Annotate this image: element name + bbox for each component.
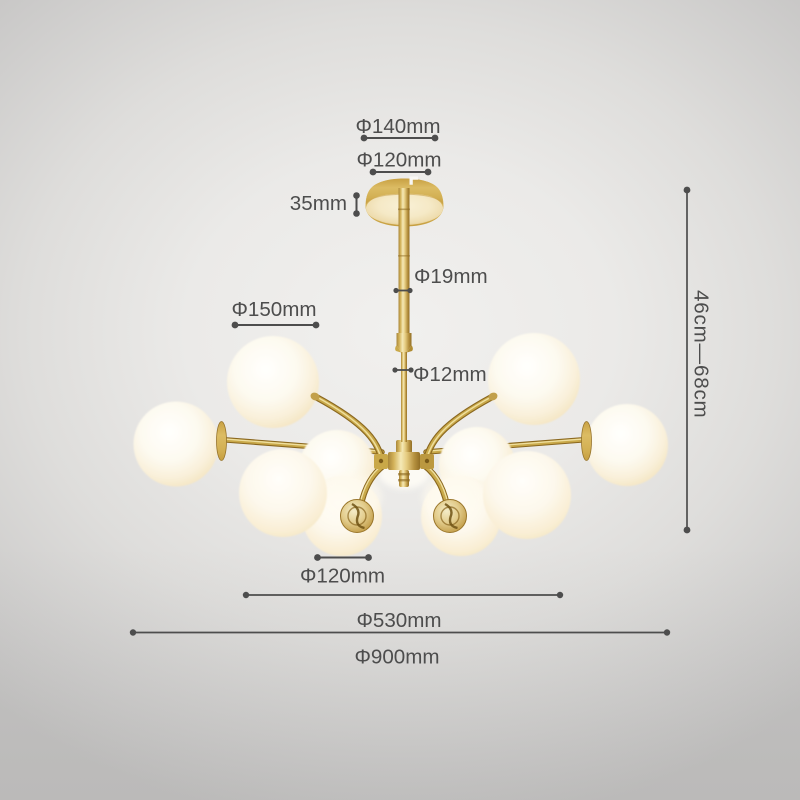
svg-text:Φ19mm: Φ19mm — [414, 265, 488, 288]
svg-text:Φ140mm: Φ140mm — [355, 115, 440, 138]
svg-text:Φ530mm: Φ530mm — [356, 609, 441, 632]
svg-text:46cm—68cm: 46cm—68cm — [690, 290, 713, 419]
svg-text:Φ900mm: Φ900mm — [354, 646, 439, 669]
svg-text:Φ120mm: Φ120mm — [300, 565, 385, 588]
svg-text:Φ150mm: Φ150mm — [231, 298, 316, 321]
svg-text:Φ12mm: Φ12mm — [413, 363, 487, 386]
svg-text:Φ120mm: Φ120mm — [356, 149, 441, 172]
svg-text:35mm: 35mm — [290, 192, 347, 215]
